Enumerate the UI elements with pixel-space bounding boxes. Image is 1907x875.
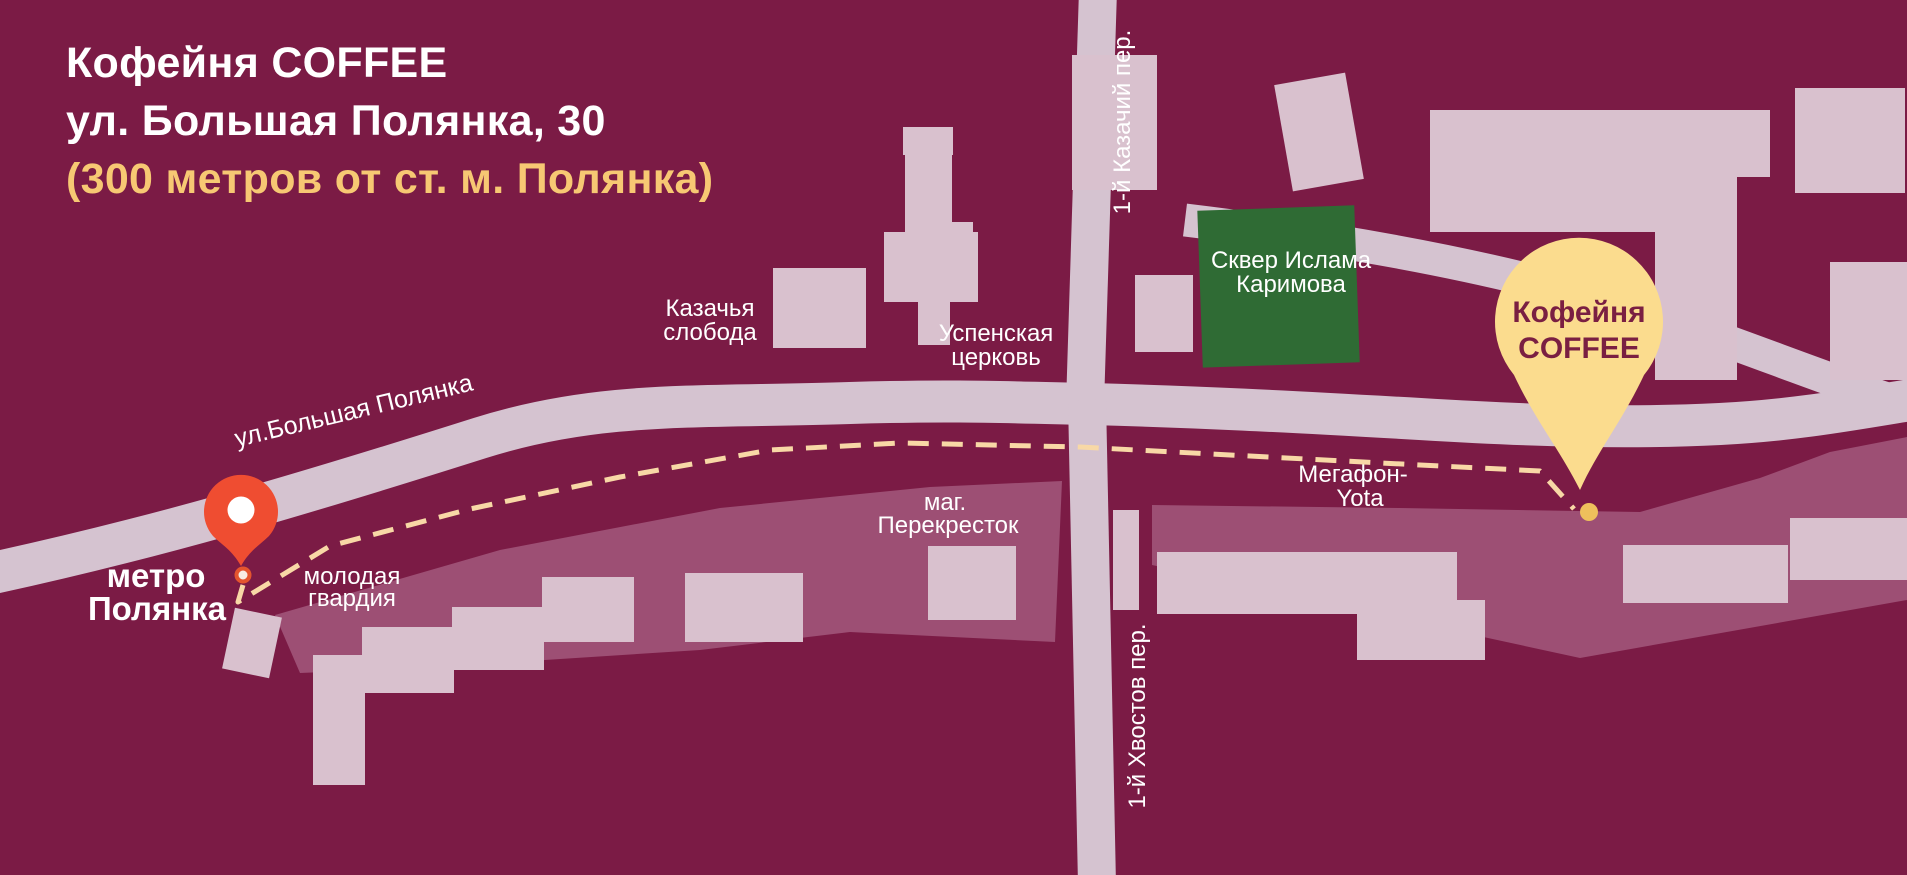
building-west-of-lane [935, 222, 973, 302]
road-khvostov [1087, 400, 1097, 875]
poster-title-line1: Кофейня COFFEE [66, 34, 713, 92]
coffee-shop-map: ул.Большая Полянка 1-й Казачий пер. 1-й … [0, 0, 1907, 875]
store-label-line2: Перекресток [877, 512, 1019, 539]
building-by-lane [1113, 510, 1139, 610]
coffee-pin-label-line2: COFFEE [1518, 332, 1640, 365]
church-label-line1: Успенская [939, 320, 1054, 347]
building-cluster-d [1430, 110, 1662, 232]
coffee-pin: Кофейня COFFEE [1495, 238, 1663, 490]
building-steps-5 [685, 573, 803, 642]
building-east-of-lane [1135, 275, 1193, 352]
poster-title-line2: ул. Большая Полянка, 30 [66, 92, 713, 150]
route-start-dot [237, 569, 250, 582]
poster-header: Кофейня COFFEE ул. Большая Полянка, 30 (… [66, 34, 713, 208]
building-cluster-g [1830, 262, 1907, 380]
building-cluster-e [1655, 170, 1737, 380]
poster-subtitle: (300 метров от ст. м. Полянка) [66, 150, 713, 208]
metro-pin-center [228, 497, 255, 524]
church-label-line2: церковь [951, 344, 1041, 371]
building-cluster-f [1795, 88, 1905, 193]
building-steps-3 [452, 607, 544, 670]
metro-pin [204, 475, 278, 566]
building-steps-1 [313, 655, 365, 785]
park-label-line1: Сквер Ислама [1211, 247, 1372, 274]
street-label-khvostov: 1-й Хвостов пер. [1124, 623, 1151, 808]
building-cluster-b [1274, 73, 1364, 192]
guard-label-line2: гвардия [308, 585, 396, 612]
sloboda-label-line2: слобода [663, 319, 757, 346]
metro-label-line2: Полянка [88, 590, 227, 627]
building-near-metro [222, 608, 282, 679]
building-steps-4 [542, 577, 634, 642]
coffee-pin-label-line1: Кофейня [1512, 296, 1645, 329]
park-label-line2: Каримова [1236, 271, 1346, 298]
street-label-kazachiy: 1-й Казачий пер. [1109, 30, 1136, 215]
metro-label-line1: метро [107, 557, 206, 594]
megafon-label-line1: Мегафон- [1298, 461, 1408, 488]
building-megafon-2 [1357, 600, 1485, 660]
route-end-dot [1580, 503, 1598, 521]
building-perekrestok [928, 546, 1016, 620]
megafon-label-line2: Yota [1336, 485, 1384, 512]
building-sloboda-square [773, 268, 866, 348]
building-megafon-3 [1623, 545, 1788, 603]
building-steps-2 [362, 627, 454, 693]
building-megafon-4 [1790, 518, 1907, 580]
sloboda-label-line1: Казачья [666, 295, 755, 322]
